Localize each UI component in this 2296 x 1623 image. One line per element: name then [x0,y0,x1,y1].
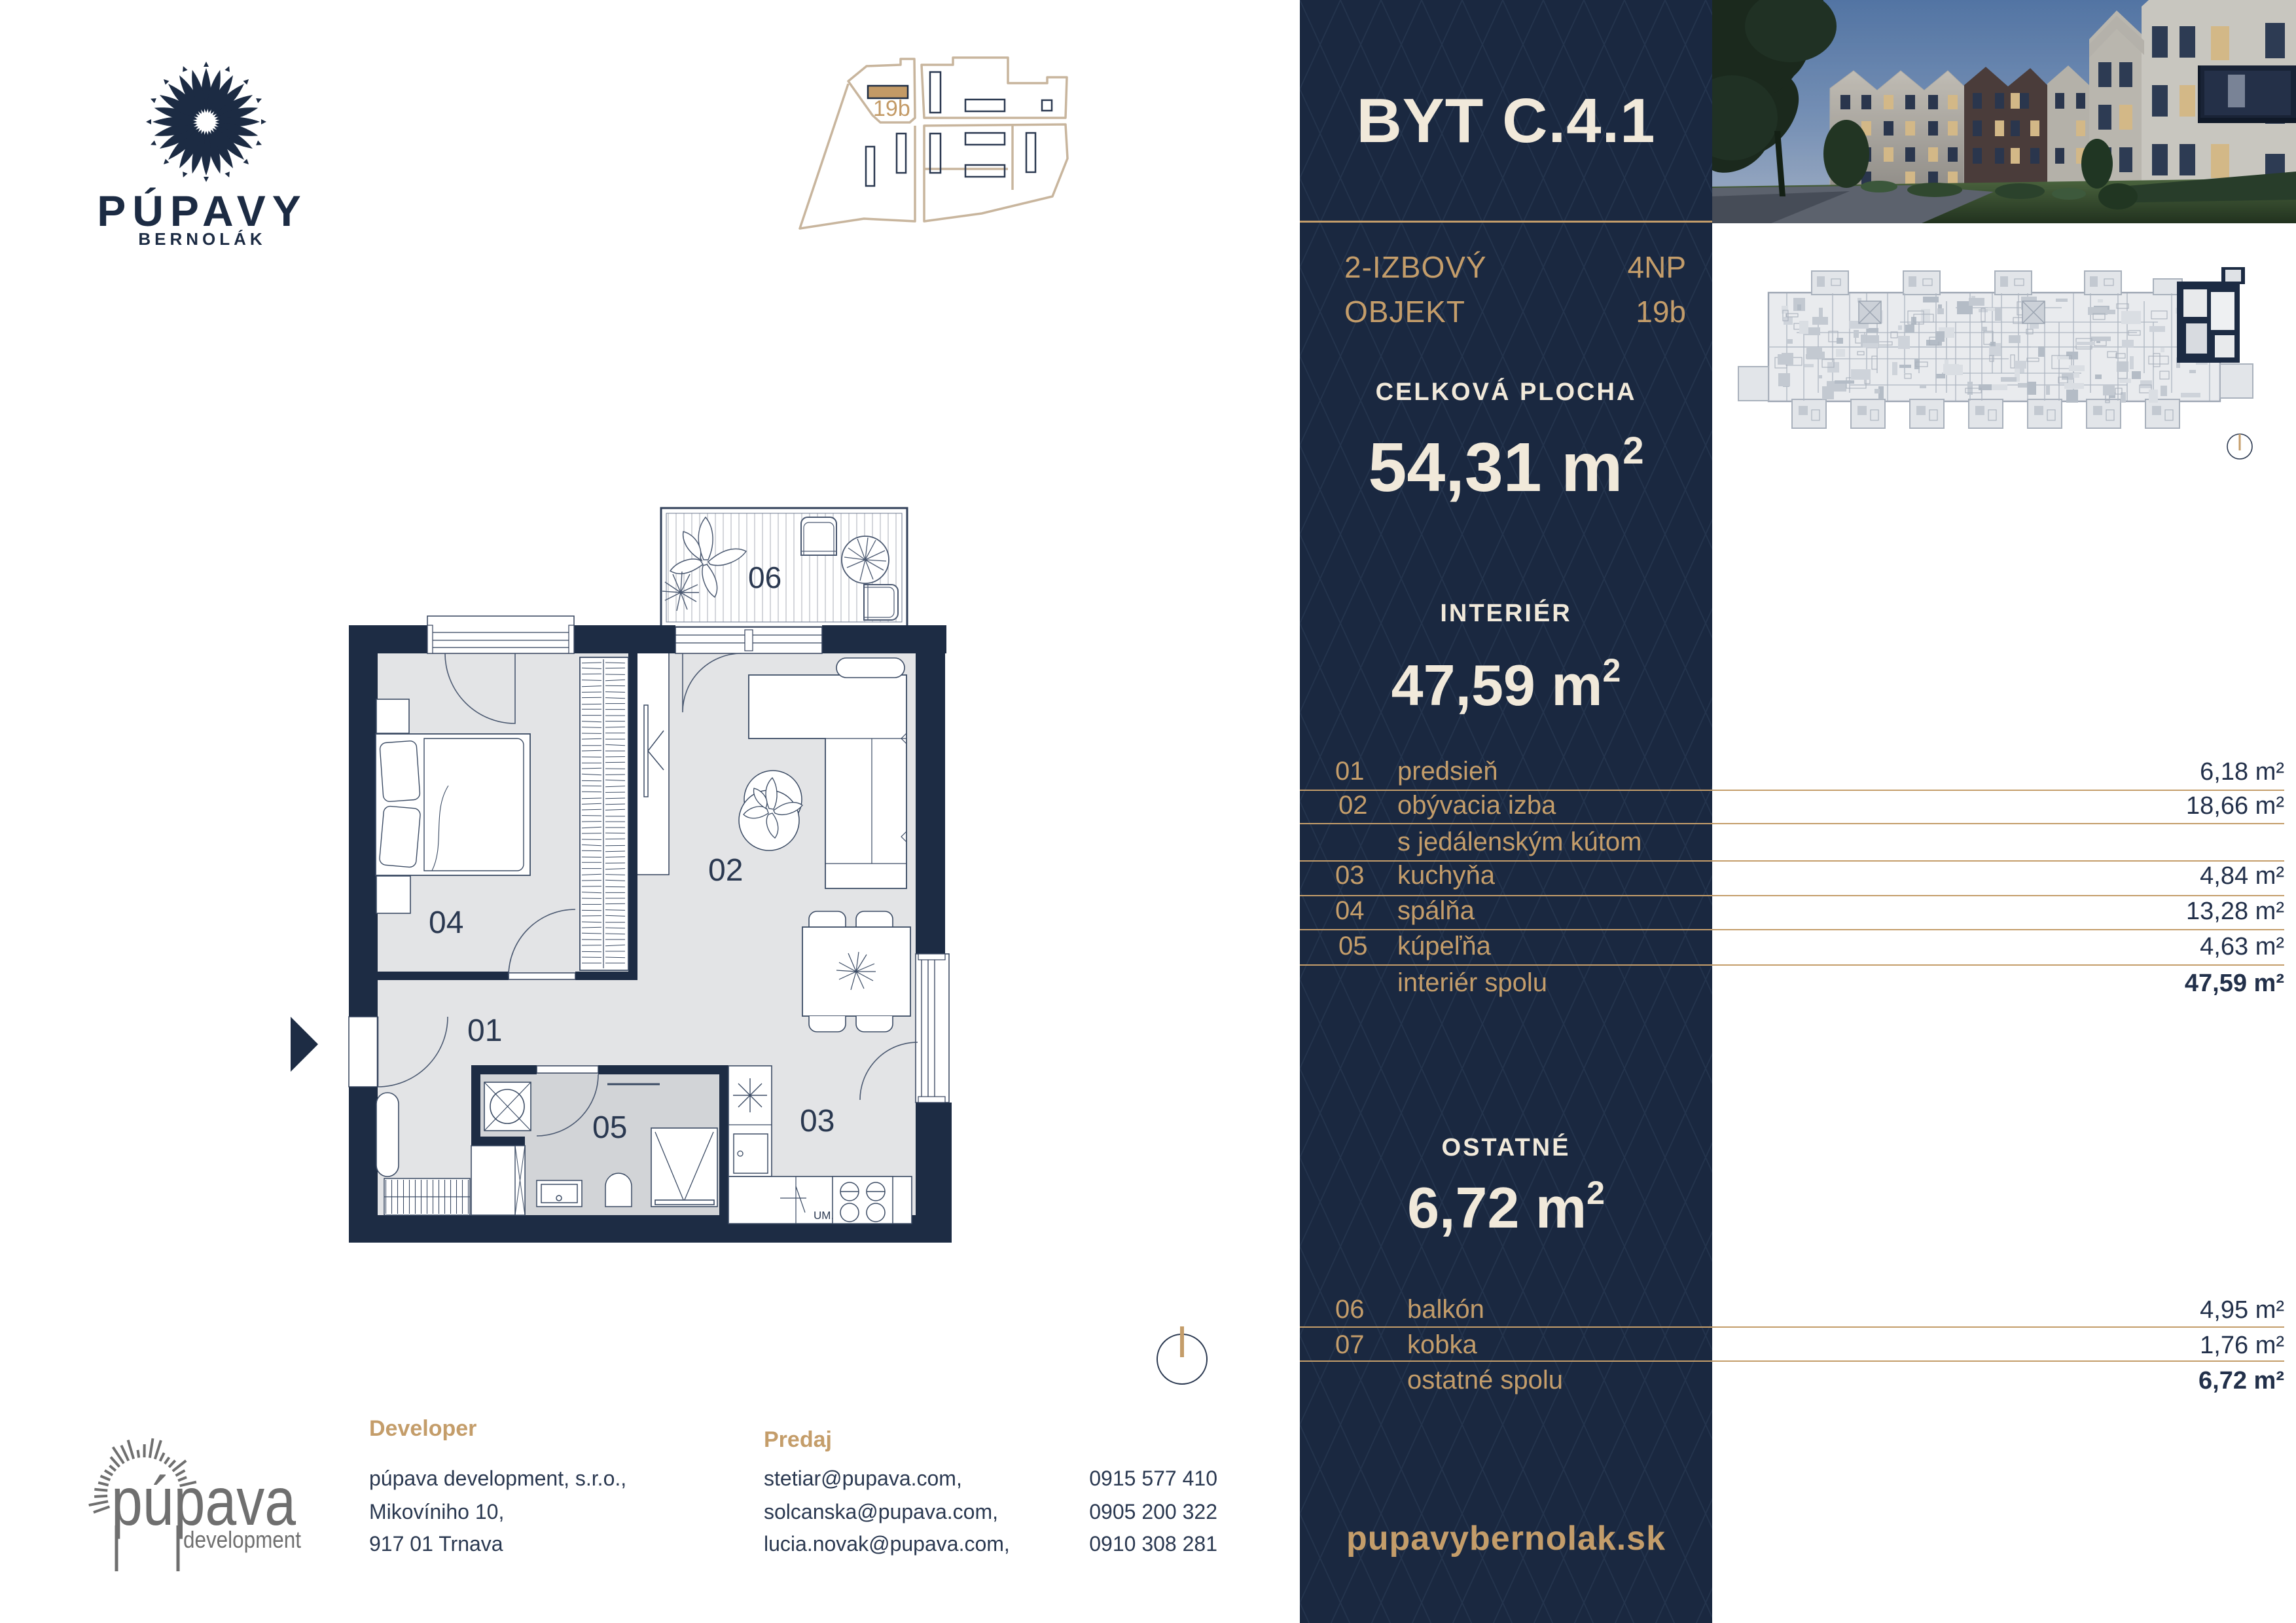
svg-text:06: 06 [748,560,781,594]
svg-text:01: 01 [467,1013,502,1048]
svg-text:19b: 19b [873,96,910,121]
svg-text:03: 03 [800,1104,834,1139]
svg-text:04: 04 [429,905,463,940]
svg-text:UM.: UM. [814,1209,834,1222]
svg-text:development: development [183,1526,301,1553]
svg-text:05: 05 [592,1110,627,1145]
svg-text:02: 02 [708,853,743,888]
